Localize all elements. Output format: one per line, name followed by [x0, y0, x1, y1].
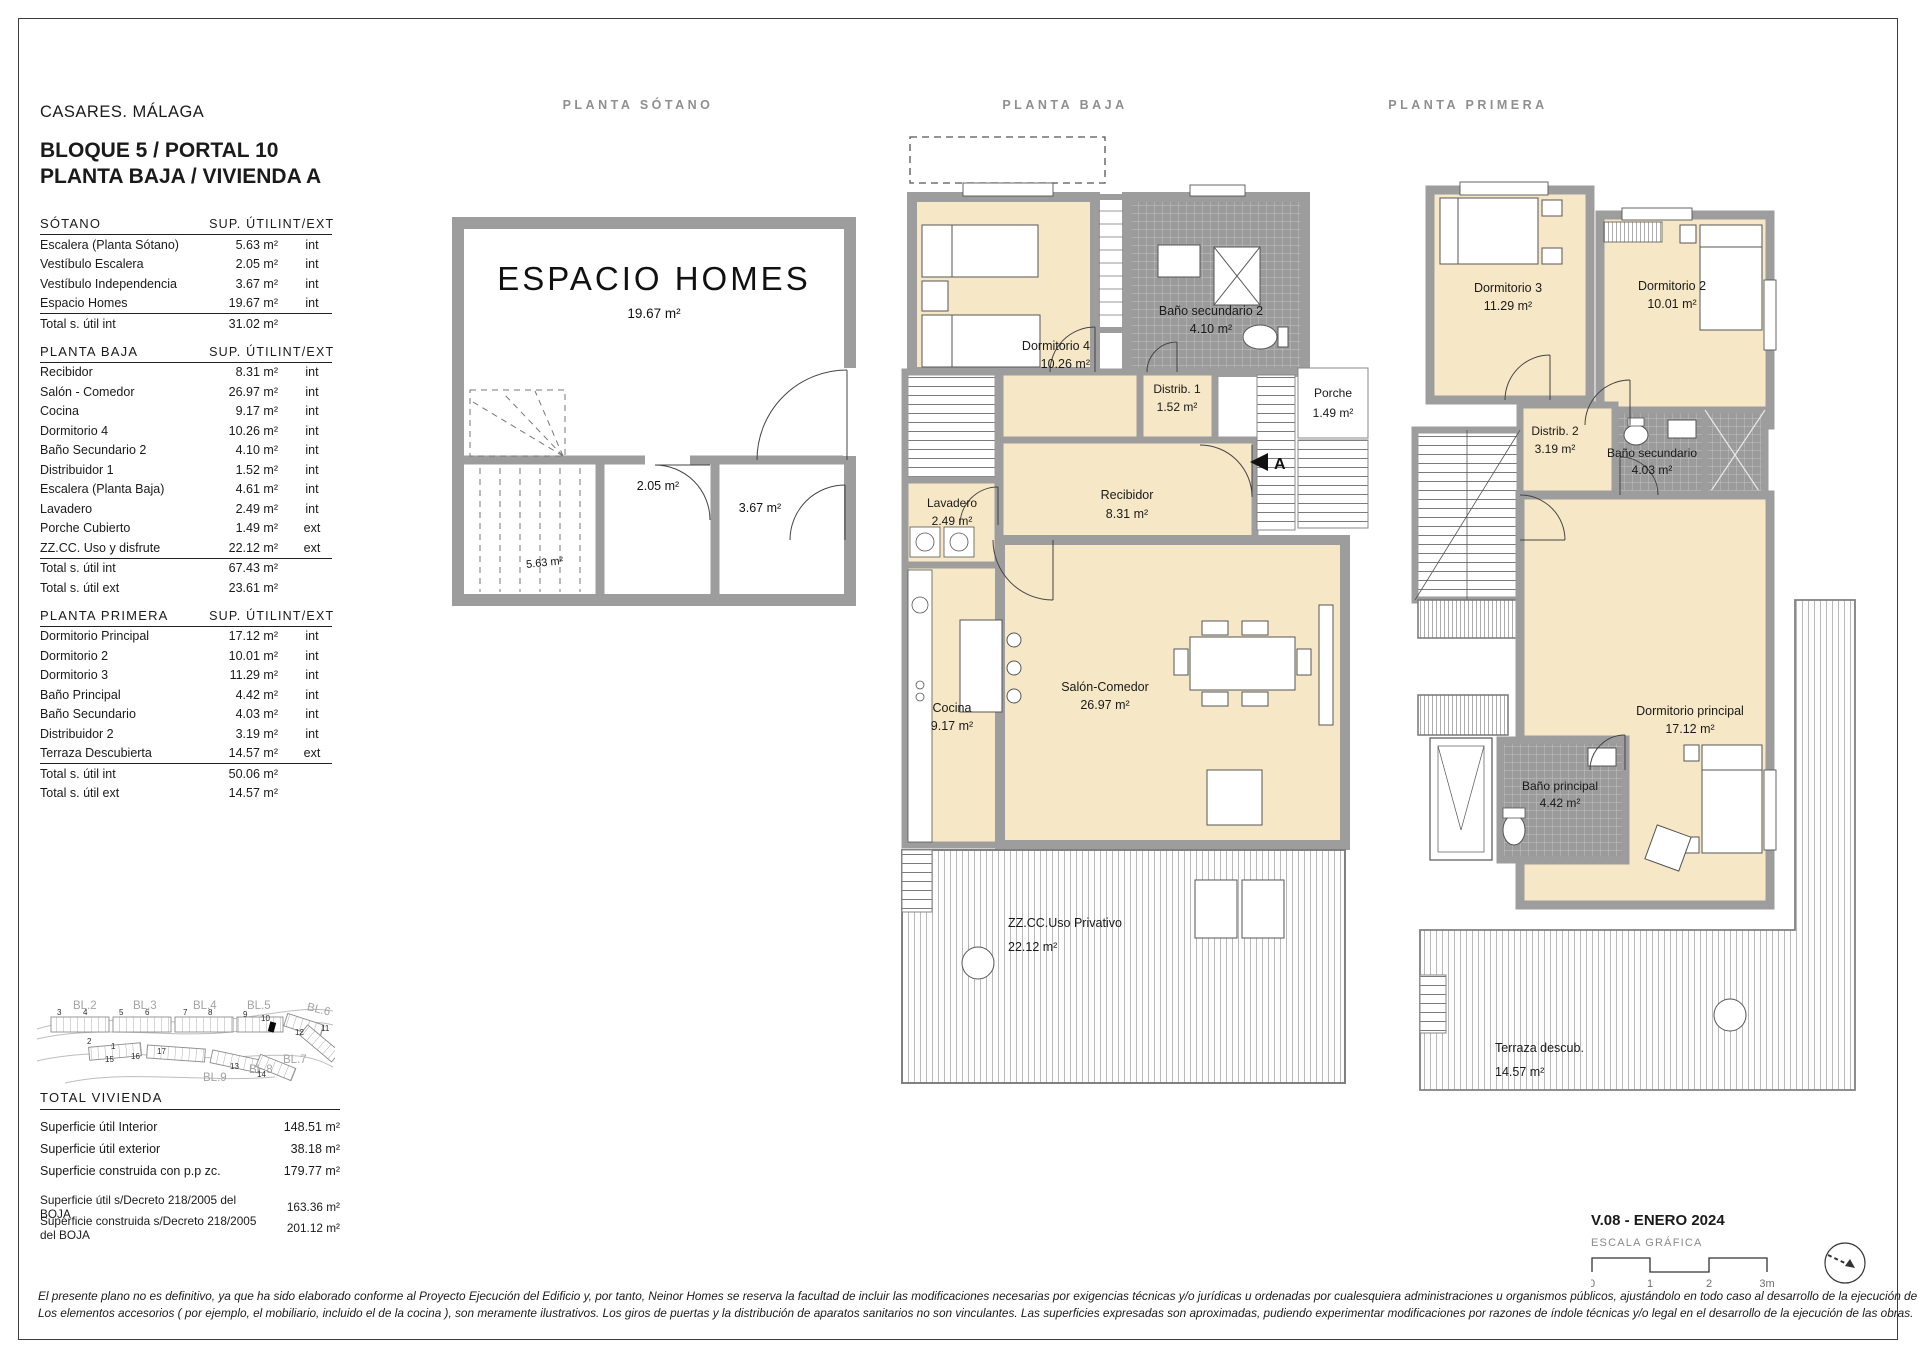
table-row: Dormitorio Principal17.12 m²int — [40, 627, 332, 647]
total-area: 179.77 m² — [260, 1164, 340, 1178]
terrace-steps — [902, 850, 932, 912]
total-name: Total s. útil ext — [40, 786, 200, 800]
vestibulo-escalera-area: 2.05 m² — [637, 479, 679, 493]
closet — [1418, 695, 1508, 735]
room-name: Vestíbulo Independencia — [40, 277, 200, 291]
room-intext: int — [278, 727, 332, 741]
table-row: Dormitorio 410.26 m²int — [40, 421, 332, 441]
door-opening — [843, 368, 857, 456]
label-banoppal: Baño principal — [1522, 779, 1598, 793]
total-name: Total s. útil int — [40, 767, 200, 781]
room-recibidor-upper — [1000, 372, 1140, 440]
areas-table: SÓTANO SUP. ÚTIL INT/EXT Escalera (Plant… — [40, 206, 332, 803]
legal-line2: Los elementos accesorios ( por ejemplo, … — [38, 1305, 1886, 1322]
page-title: BLOQUE 5 / PORTAL 10 — [40, 138, 332, 164]
label-lavadero: Lavadero — [927, 496, 977, 510]
hob-burner — [916, 681, 924, 689]
room-intext: int — [278, 649, 332, 663]
total-area: 14.57 m² — [200, 786, 278, 800]
room-area-label: 19.67 m² — [627, 306, 681, 321]
total-area: 67.43 m² — [200, 561, 278, 575]
version-label: V.08 - ENERO 2024 — [1591, 1212, 1725, 1229]
area-terraza-zzcc: 22.12 m² — [1008, 940, 1057, 954]
svg-text:12: 12 — [295, 1028, 304, 1037]
room-intext: ext — [278, 746, 332, 760]
site-map: BL.2 BL.3 BL.4 BL.5 BL.6 BL.7 BL.8 BL.9 … — [35, 995, 335, 1090]
site-buildings — [51, 1013, 335, 1080]
block-label: BL.7 — [283, 1054, 307, 1066]
total-area: 31.02 m² — [200, 317, 278, 331]
room-intext: int — [278, 668, 332, 682]
floorplan-primera: Dormitorio 3 11.29 m² Dormitorio 2 10.01… — [1400, 130, 1870, 1160]
room-name: Dormitorio 2 — [40, 649, 200, 663]
kitchen-sink — [912, 597, 928, 613]
area-recibidor: 8.31 m² — [1106, 507, 1148, 521]
area-bano2: 4.10 m² — [1190, 322, 1232, 336]
location-title: CASARES. MÁLAGA — [40, 103, 332, 122]
room-name: Salón - Comedor — [40, 385, 200, 399]
col-intext: INT/EXT — [278, 217, 332, 231]
svg-text:15: 15 — [105, 1055, 114, 1064]
table-row: Lavadero2.49 m²int — [40, 499, 332, 519]
summary-panel: CASARES. MÁLAGA BLOQUE 5 / PORTAL 10 PLA… — [40, 103, 332, 803]
chair — [1297, 649, 1311, 675]
dining-table — [1190, 637, 1295, 690]
room-name: Cocina — [40, 404, 200, 418]
col-area: SUP. ÚTIL — [200, 609, 278, 623]
block-label: BL.4 — [193, 1000, 217, 1012]
room-name: Porche Cubierto — [40, 521, 200, 535]
table-row: Distribuidor 23.19 m²int — [40, 724, 332, 744]
stairs-escalera — [905, 372, 998, 480]
total-row: Superficie construida con p.p zc.179.77 … — [40, 1160, 340, 1182]
total-area: 50.06 m² — [200, 767, 278, 781]
closet — [1418, 600, 1518, 638]
svg-text:13: 13 — [230, 1062, 239, 1071]
table-row: Baño Principal4.42 m²int — [40, 685, 332, 705]
total-area: 23.61 m² — [200, 581, 278, 595]
room-intext: ext — [278, 541, 332, 555]
total-name: Superficie construida con p.p zc. — [40, 1164, 260, 1178]
table-total-row: Total s. útil ext14.57 m² — [40, 784, 332, 804]
svg-text:14: 14 — [257, 1070, 266, 1079]
lounger — [1242, 880, 1284, 938]
svg-text:11: 11 — [321, 1024, 330, 1033]
total-name: Superficie útil Interior — [40, 1120, 260, 1134]
room-label: ESPACIO HOMES — [497, 260, 810, 297]
stool — [1007, 689, 1021, 703]
col-area: SUP. ÚTIL — [200, 217, 278, 231]
total-area: 38.18 m² — [260, 1142, 340, 1156]
room-intext: int — [278, 463, 332, 477]
block-label: BL.6 — [306, 1001, 332, 1018]
chair — [1242, 692, 1268, 706]
sink — [1668, 420, 1696, 438]
room-area: 4.10 m² — [200, 443, 278, 457]
room-area: 5.63 m² — [200, 238, 278, 252]
label-bano2: Baño secundario 2 — [1159, 304, 1263, 318]
label-dorm3: Dormitorio 3 — [1474, 281, 1542, 295]
room-area: 2.49 m² — [200, 502, 278, 516]
closet-strip — [1604, 222, 1662, 242]
bed — [922, 225, 1038, 277]
svg-text:8: 8 — [208, 1008, 213, 1017]
closet-dormitorio4 — [1097, 197, 1125, 330]
terrace-steps — [1420, 975, 1446, 1033]
total-row: Superficie útil Interior148.51 m² — [40, 1116, 340, 1138]
room-area: 4.03 m² — [200, 707, 278, 721]
room-area: 4.61 m² — [200, 482, 278, 496]
svg-text:5: 5 — [119, 1008, 124, 1017]
area-porche: 1.49 m² — [1313, 406, 1354, 420]
table-row: Espacio Homes19.67 m²int — [40, 294, 332, 314]
total-name: Total s. útil int — [40, 561, 200, 575]
room-name: Recibidor — [40, 365, 200, 379]
section-title: PLANTA BAJA — [40, 344, 200, 359]
room-area: 22.12 m² — [200, 541, 278, 555]
area-dormppal: 17.12 m² — [1665, 722, 1714, 736]
nightstand — [922, 281, 948, 311]
label-salon: Salón-Comedor — [1061, 680, 1149, 694]
table-row: Distribuidor 11.52 m²int — [40, 460, 332, 480]
label-distrib1: Distrib. 1 — [1153, 382, 1201, 396]
legal-line1: El presente plano no es definitivo, ya q… — [38, 1288, 1886, 1305]
room-name: Distribuidor 2 — [40, 727, 200, 741]
area-dorm2: 10.01 m² — [1647, 297, 1696, 311]
room-intext: int — [278, 257, 332, 271]
room-name: Dormitorio 4 — [40, 424, 200, 438]
room-name: Vestíbulo Escalera — [40, 257, 200, 271]
label-cocina: Cocina — [933, 701, 972, 715]
area-banoppal: 4.42 m² — [1540, 796, 1581, 810]
stool — [1007, 661, 1021, 675]
room-area: 26.97 m² — [200, 385, 278, 399]
label-dorm2: Dormitorio 2 — [1638, 279, 1706, 293]
table-row: Dormitorio 311.29 m²int — [40, 666, 332, 686]
room-area: 10.26 m² — [200, 424, 278, 438]
porch-floor — [1298, 368, 1368, 438]
label-dormitorio4: Dormitorio 4 — [1022, 339, 1090, 353]
graphic-scale: 0 1 2 3m — [1591, 1250, 1791, 1292]
room-name: Escalera (Planta Baja) — [40, 482, 200, 496]
room-intext: int — [278, 502, 332, 516]
section-title: PLANTA PRIMERA — [40, 608, 200, 623]
chair — [1242, 621, 1268, 635]
col-intext: INT/EXT — [278, 345, 332, 359]
nightstand — [1680, 225, 1696, 243]
table-row: Dormitorio 210.01 m²int — [40, 646, 332, 666]
svg-text:9: 9 — [243, 1010, 248, 1019]
room-area: 4.42 m² — [200, 688, 278, 702]
lounger — [1195, 880, 1237, 938]
plan-title-sotano: PLANTA SÓTANO — [518, 98, 758, 112]
sink — [1158, 245, 1200, 277]
area-dormitorio4: 10.26 m² — [1041, 357, 1090, 371]
legal-text: El presente plano no es definitivo, ya q… — [38, 1288, 1886, 1322]
total-row: Superficie construida s/Decreto 218/2005… — [40, 1217, 340, 1238]
area-terraza: 14.57 m² — [1495, 1065, 1544, 1079]
room-area: 19.67 m² — [200, 296, 278, 310]
section-title: SÓTANO — [40, 216, 200, 231]
room-intext: int — [278, 629, 332, 643]
decree-rows: Superficie útil s/Decreto 218/2005 del B… — [40, 1196, 340, 1238]
label-terraza: Terraza descub. — [1495, 1041, 1584, 1055]
svg-text:2: 2 — [87, 1037, 92, 1046]
svg-text:16: 16 — [131, 1052, 140, 1061]
svg-text:6: 6 — [145, 1008, 150, 1017]
chair — [1202, 692, 1228, 706]
total-area: 148.51 m² — [260, 1120, 340, 1134]
svg-text:3: 3 — [57, 1008, 62, 1017]
table-row: Vestíbulo Escalera2.05 m²int — [40, 255, 332, 275]
floorplan-baja: A Dormitorio 4 10.26 m² Baño secundario … — [890, 125, 1390, 1095]
table-row: Baño Secundario 24.10 m²int — [40, 441, 332, 461]
area-distrib2: 3.19 m² — [1535, 442, 1576, 456]
table-row: Baño Secundario4.03 m²int — [40, 705, 332, 725]
bed — [1702, 745, 1762, 853]
porch-steps — [1298, 440, 1368, 528]
label-recibidor: Recibidor — [1101, 488, 1154, 502]
total-vivienda-title: TOTAL VIVIENDA — [40, 1090, 340, 1110]
table-total-row: Total s. útil ext23.61 m² — [40, 578, 332, 598]
total-name: Total s. útil int — [40, 317, 200, 331]
area-cocina: 9.17 m² — [931, 719, 973, 733]
room-area: 14.57 m² — [200, 746, 278, 760]
room-name: Terraza Descubierta — [40, 746, 200, 760]
room-area: 1.49 m² — [200, 521, 278, 535]
room-name: Baño Secundario 2 — [40, 443, 200, 457]
svg-text:17: 17 — [157, 1047, 166, 1056]
col-area: SUP. ÚTIL — [200, 345, 278, 359]
area-salon: 26.97 m² — [1080, 698, 1129, 712]
table-row: Terraza Descubierta14.57 m²ext — [40, 744, 332, 764]
hob-burner — [916, 693, 924, 701]
table-row: Escalera (Planta Sótano)5.63 m²int — [40, 235, 332, 255]
area-distrib1: 1.52 m² — [1157, 400, 1198, 414]
total-vivienda: TOTAL VIVIENDA Superficie útil Interior1… — [40, 1090, 340, 1238]
chair — [1202, 621, 1228, 635]
table-section-header: PLANTA PRIMERA SUP. ÚTIL INT/EXT — [40, 598, 332, 627]
room-name: Baño Secundario — [40, 707, 200, 721]
room-name: ZZ.CC. Uso y disfrute — [40, 541, 200, 555]
nightstand — [1684, 745, 1699, 761]
total-area: 201.12 m² — [260, 1221, 340, 1235]
room-intext: int — [278, 443, 332, 457]
room-name: Baño Principal — [40, 688, 200, 702]
plan-title-baja: PLANTA BAJA — [945, 98, 1185, 112]
svg-text:7: 7 — [183, 1008, 188, 1017]
terrace-table — [1714, 999, 1746, 1031]
block-label: BL.9 — [203, 1072, 227, 1084]
armchair — [1207, 770, 1262, 825]
scale-label: ESCALA GRÁFICA — [1591, 1237, 1703, 1249]
room-area: 2.05 m² — [200, 257, 278, 271]
table-row: Salón - Comedor26.97 m²int — [40, 382, 332, 402]
tv-unit — [1319, 605, 1333, 725]
north-arrow-icon — [1815, 1235, 1875, 1295]
area-dorm3: 11.29 m² — [1484, 299, 1532, 313]
table-row: ZZ.CC. Uso y disfrute22.12 m²ext — [40, 538, 332, 558]
room-area: 3.67 m² — [200, 277, 278, 291]
vestibulo-independencia-area: 3.67 m² — [739, 501, 781, 515]
table-section-header: PLANTA BAJA SUP. ÚTIL INT/EXT — [40, 334, 332, 363]
kitchen-island — [960, 620, 1002, 712]
room-name: Espacio Homes — [40, 296, 200, 310]
entry-steps — [1257, 375, 1295, 530]
room-salon-comedor — [1000, 540, 1345, 845]
room-intext: int — [278, 385, 332, 399]
area-banosec: 4.03 m² — [1632, 463, 1673, 477]
table-row: Recibidor8.31 m²int — [40, 363, 332, 383]
page-subtitle: PLANTA BAJA / VIVIENDA A — [40, 164, 332, 190]
svg-text:4: 4 — [83, 1008, 88, 1017]
room-name: Lavadero — [40, 502, 200, 516]
table-total-row: Total s. útil int50.06 m² — [40, 763, 332, 784]
room-name: Distribuidor 1 — [40, 463, 200, 477]
col-intext: INT/EXT — [278, 609, 332, 623]
label-dormppal: Dormitorio principal — [1636, 704, 1744, 718]
room-name: Escalera (Planta Sótano) — [40, 238, 200, 252]
room-name: Dormitorio Principal — [40, 629, 200, 643]
nightstand — [1542, 248, 1562, 264]
room-area: 11.29 m² — [200, 668, 278, 682]
table-section-header: SÓTANO SUP. ÚTIL INT/EXT — [40, 206, 332, 235]
toilet — [1624, 425, 1648, 445]
table-total-row: Total s. útil int67.43 m² — [40, 558, 332, 579]
label-banosec: Baño secundario — [1607, 446, 1697, 460]
room-intext: int — [278, 482, 332, 496]
bed — [1700, 225, 1762, 330]
table-row: Cocina9.17 m²int — [40, 402, 332, 422]
area-lavadero: 2.49 m² — [932, 514, 973, 528]
room-intext: int — [278, 688, 332, 702]
svg-text:10: 10 — [261, 1014, 270, 1023]
toilet — [1503, 815, 1525, 845]
nightstand — [1542, 200, 1562, 216]
table-row: Escalera (Planta Baja)4.61 m²int — [40, 480, 332, 500]
plan-title-primera: PLANTA PRIMERA — [1348, 98, 1588, 112]
projection-dashed-outline — [910, 137, 1105, 183]
total-name: Superficie útil exterior — [40, 1142, 260, 1156]
label-porche: Porche — [1314, 386, 1352, 400]
toilet — [1243, 325, 1277, 349]
terrace-table — [962, 947, 994, 979]
room-area: 17.12 m² — [200, 629, 278, 643]
label-distrib2: Distrib. 2 — [1531, 424, 1579, 438]
label-terraza-zzcc: ZZ.CC.Uso Privativo — [1008, 916, 1122, 930]
room-area: 3.19 m² — [200, 727, 278, 741]
room-intext: int — [278, 424, 332, 438]
chair — [1174, 649, 1188, 675]
room-intext: ext — [278, 521, 332, 535]
svg-text:1: 1 — [111, 1042, 116, 1051]
room-intext: int — [278, 707, 332, 721]
room-area: 9.17 m² — [200, 404, 278, 418]
total-row: Superficie útil exterior38.18 m² — [40, 1138, 340, 1160]
stool — [1007, 633, 1021, 647]
total-area: 163.36 m² — [260, 1200, 340, 1214]
table-row: Vestíbulo Independencia3.67 m²int — [40, 274, 332, 294]
block-label: BL.5 — [247, 1000, 271, 1012]
total-name: Total s. útil ext — [40, 581, 200, 595]
room-name: Dormitorio 3 — [40, 668, 200, 682]
table-row: Porche Cubierto1.49 m²ext — [40, 519, 332, 539]
table-total-row: Total s. útil int31.02 m² — [40, 313, 332, 334]
room-intext: int — [278, 277, 332, 291]
room-intext: int — [278, 238, 332, 252]
floorplan-sotano: ESPACIO HOMES 19.67 m² 2.05 m² 3.67 m² 5… — [445, 210, 865, 620]
total-name: Superficie construida s/Decreto 218/2005… — [40, 1214, 260, 1242]
room-area: 1.52 m² — [200, 463, 278, 477]
room-intext: int — [278, 296, 332, 310]
room-intext: int — [278, 365, 332, 379]
section-letter: A — [1274, 456, 1286, 473]
bed — [1440, 198, 1538, 264]
room-intext: int — [278, 404, 332, 418]
room-area: 8.31 m² — [200, 365, 278, 379]
room-area: 10.01 m² — [200, 649, 278, 663]
